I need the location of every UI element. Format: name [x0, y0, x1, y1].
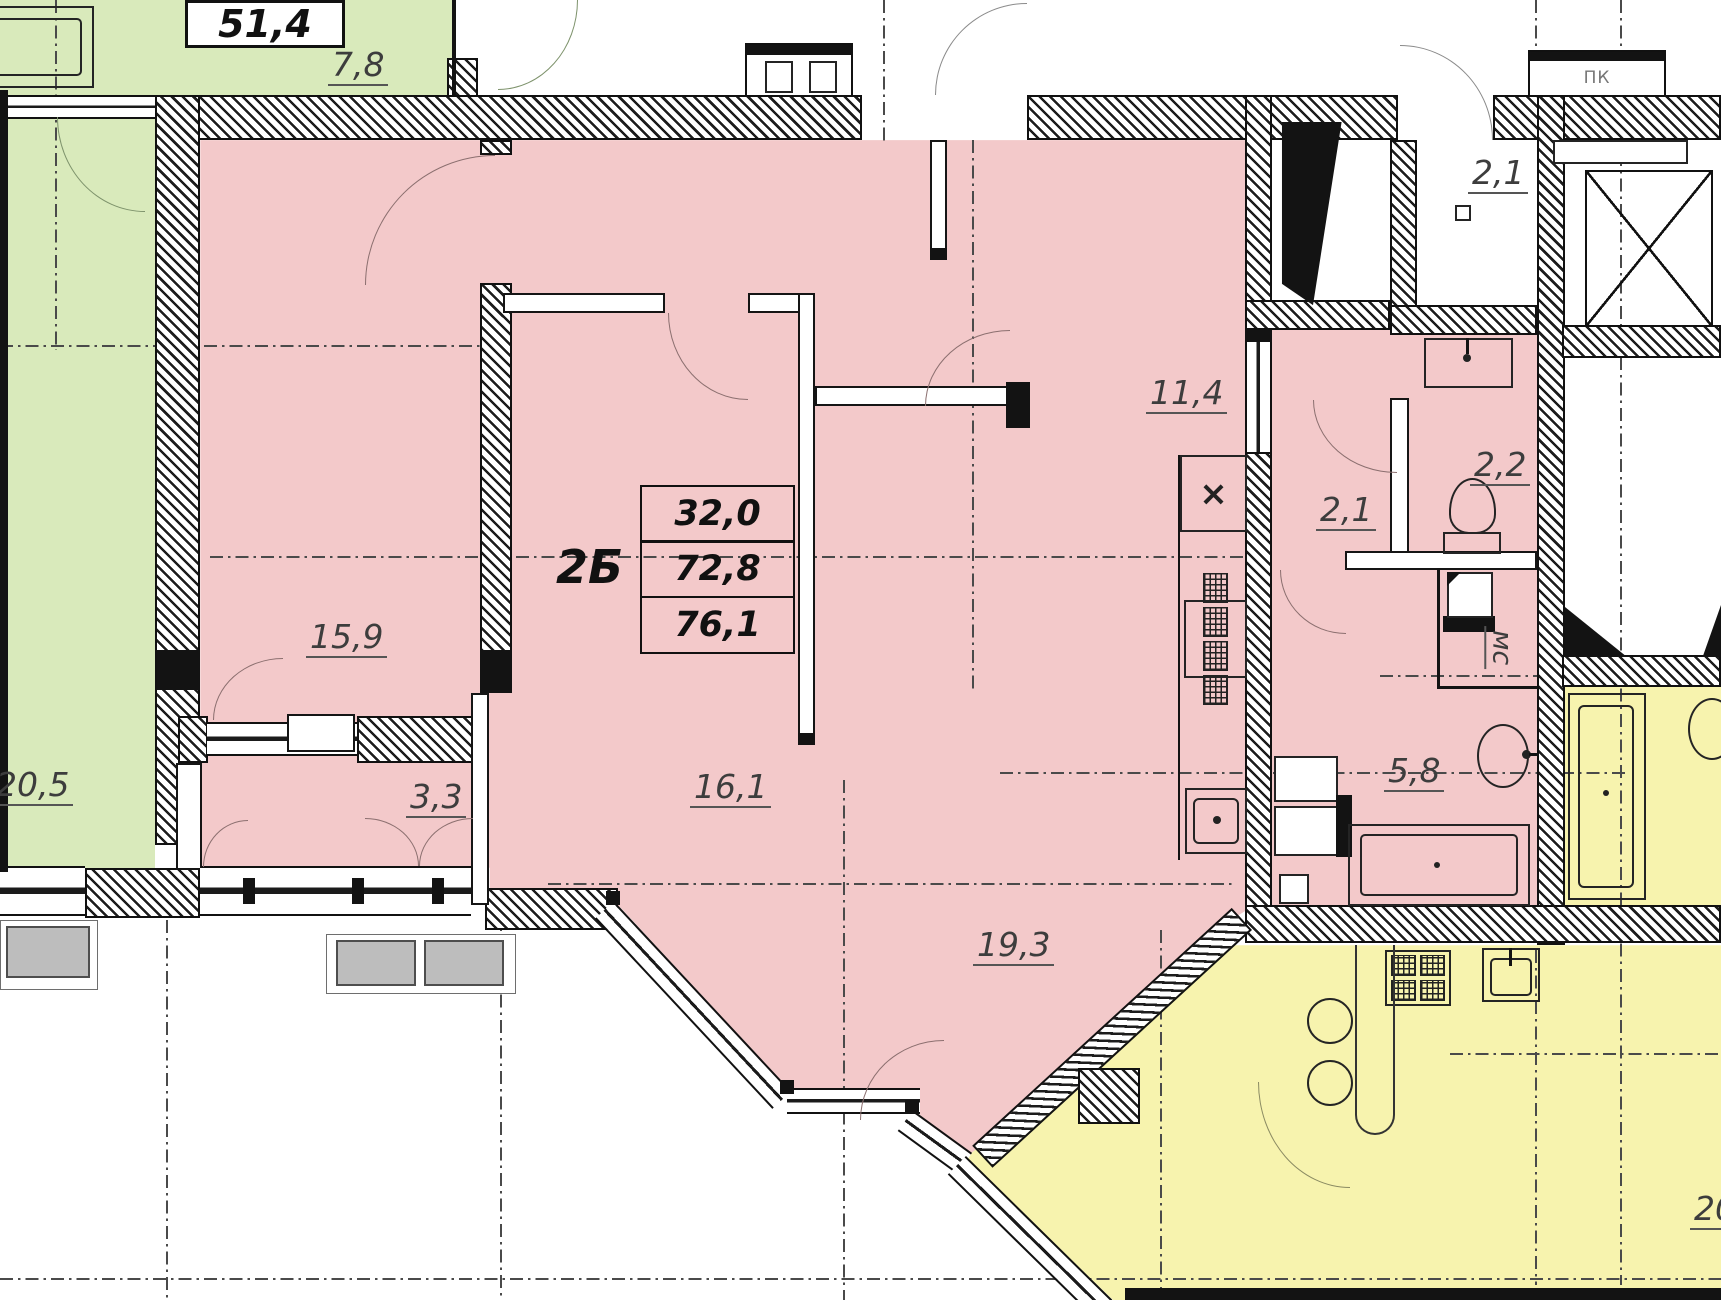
label-bedroom: 15,9 — [306, 620, 387, 658]
lobby-marker — [1455, 205, 1471, 221]
green-room-fill — [0, 95, 155, 870]
exterior-wall-top-right — [1493, 95, 1721, 140]
label-green-room: 20,5 — [0, 768, 73, 806]
neighbor-area-box: 51,4 — [185, 0, 345, 48]
door-arc-lobby — [1400, 45, 1493, 140]
area-row-living: 32,0 — [640, 485, 795, 543]
stove-icon — [1184, 600, 1247, 678]
oval-sink-icon — [1477, 724, 1529, 788]
bay-joint — [606, 891, 620, 905]
wall-joint — [480, 650, 512, 693]
label-right-room: 20 — [1690, 1192, 1721, 1230]
wall-ventroom-bottom — [1245, 300, 1390, 330]
wall-bedroom-room — [480, 283, 512, 693]
partition-room-top-right — [748, 293, 802, 313]
burner — [1203, 641, 1228, 671]
window-mullion — [352, 878, 364, 904]
loggia-window-band — [200, 866, 471, 916]
washing-machine-icon — [1274, 756, 1338, 802]
fire-cabinet-label: ПК — [1530, 61, 1664, 95]
label-green-loggia: 7,8 — [328, 48, 388, 86]
area-table: 32,0 72,8 76,1 — [640, 485, 795, 654]
apartment-id: 2Б — [556, 540, 623, 594]
window-mullion — [432, 878, 444, 904]
axis-line — [1380, 675, 1560, 677]
wall-kitchen-bottom — [1245, 452, 1272, 907]
sink-faucet — [1213, 816, 1221, 824]
green-window-band — [0, 866, 85, 916]
label-wc: 2,2 — [1470, 448, 1530, 486]
green-edge-wall — [0, 90, 8, 872]
entrance-leaf-cap — [930, 248, 947, 260]
axis-line — [548, 883, 1236, 885]
wall-bedroom-bottom-right — [357, 716, 487, 763]
fire-cabinet: ПК — [1528, 50, 1666, 97]
ac-unit — [6, 926, 90, 978]
wall-joint — [157, 650, 200, 690]
oval-sink-stub — [1529, 753, 1539, 756]
wall-bath-bottom — [1245, 905, 1721, 943]
toilet-tank — [1443, 532, 1501, 554]
wc-sink-drain — [1463, 354, 1471, 362]
axis-line — [972, 140, 974, 690]
bathtub-inner — [0, 18, 82, 76]
shaft-wedge — [1280, 122, 1390, 307]
green-loggia-window — [0, 95, 155, 119]
axis-line — [843, 780, 845, 1300]
wall-right-long — [1537, 95, 1565, 945]
counter-outline — [1355, 945, 1395, 1135]
axis-line — [1450, 1053, 1721, 1055]
green-loggia-rail — [452, 0, 456, 95]
vent-cell — [809, 61, 837, 93]
exterior-wall-top-mid — [1027, 95, 1398, 140]
wall-bedroom-stub — [480, 140, 512, 155]
wall-yellowbath-top — [1562, 655, 1721, 687]
wall-elevator-bottom — [1562, 325, 1721, 358]
partition-room-vertical — [798, 293, 815, 745]
wall-diagonal-step — [1078, 1068, 1140, 1124]
wc-sink-icon — [1424, 338, 1513, 388]
washing-machine-icon — [1274, 806, 1338, 856]
corner-wedge — [1565, 607, 1627, 657]
window-mullion — [243, 878, 255, 904]
wall-lobby-bottom — [1390, 305, 1537, 335]
wall-bedroom-bottom-left — [178, 716, 208, 763]
elevator-shaft — [1585, 170, 1713, 327]
label-corridor: 2,1 — [1316, 493, 1376, 531]
label-storage: мс — [1484, 626, 1515, 669]
small-cabinet — [1279, 874, 1309, 904]
fire-cabinet-band — [1530, 52, 1664, 61]
wc-sink-faucet — [1466, 338, 1469, 354]
floor-plan: × ПК — [0, 0, 1721, 1300]
burner — [1203, 573, 1228, 603]
axis-line — [0, 345, 495, 347]
vent-mark: × — [1199, 477, 1228, 511]
axis-line — [166, 920, 168, 1300]
table-circle — [1307, 998, 1353, 1044]
loggia-wall-right — [471, 693, 489, 905]
ac-unit — [424, 940, 504, 986]
elevator-slot — [1553, 140, 1688, 164]
bedroom-loggia-doorleaf — [287, 714, 355, 752]
partition-room-top-left — [503, 293, 665, 313]
vent-cell — [765, 61, 793, 93]
neighbor-area-value: 51,4 — [218, 2, 312, 46]
bay-joint — [780, 1080, 794, 1094]
burner — [1203, 607, 1228, 637]
wall-green-bottom — [85, 868, 200, 918]
partition-bath-top — [1345, 551, 1537, 570]
burner — [1420, 955, 1445, 976]
label-loggia: 3,3 — [406, 780, 466, 818]
bathtub-drain — [1603, 790, 1609, 796]
bathtub-drain — [1434, 862, 1440, 868]
storage-line-v — [1437, 568, 1440, 688]
entrance-door-leaf — [930, 140, 947, 252]
bottom-edge-wall — [1125, 1288, 1721, 1300]
wall-joint — [1245, 330, 1272, 342]
counter-line — [1178, 455, 1180, 860]
kitchen-pass-window — [1245, 340, 1272, 452]
wall-lobby-left — [1390, 140, 1417, 312]
burner — [1203, 675, 1228, 705]
label-room: 16,1 — [690, 770, 771, 808]
ac-unit — [336, 940, 416, 986]
vent-box-band — [747, 45, 851, 55]
label-kitchen-living: 19,3 — [973, 928, 1054, 966]
sink-faucet — [1509, 948, 1512, 966]
axis-line — [0, 1278, 1721, 1280]
wall-room-bottom — [485, 888, 618, 930]
vent-box — [745, 43, 853, 97]
area-row-total: 76,1 — [640, 596, 795, 654]
label-bathroom: 5,8 — [1384, 754, 1444, 792]
wall-joint — [798, 733, 815, 745]
axis-line — [883, 0, 885, 145]
burner — [1420, 980, 1445, 1001]
label-hall: 11,4 — [1146, 376, 1227, 414]
loggia-wall-left — [176, 763, 202, 870]
vent-duct: × — [1180, 455, 1247, 532]
storage-line-h — [1437, 686, 1537, 689]
bathtub-inner — [1578, 705, 1634, 888]
corner-wedge — [1698, 605, 1721, 657]
area-row-main: 72,8 — [640, 540, 795, 598]
label-lobby: 2,1 — [1468, 156, 1528, 194]
door-arc-green-loggia — [498, 0, 578, 90]
door-arc-entrance — [935, 3, 1027, 95]
exterior-wall-top-left — [155, 95, 862, 140]
